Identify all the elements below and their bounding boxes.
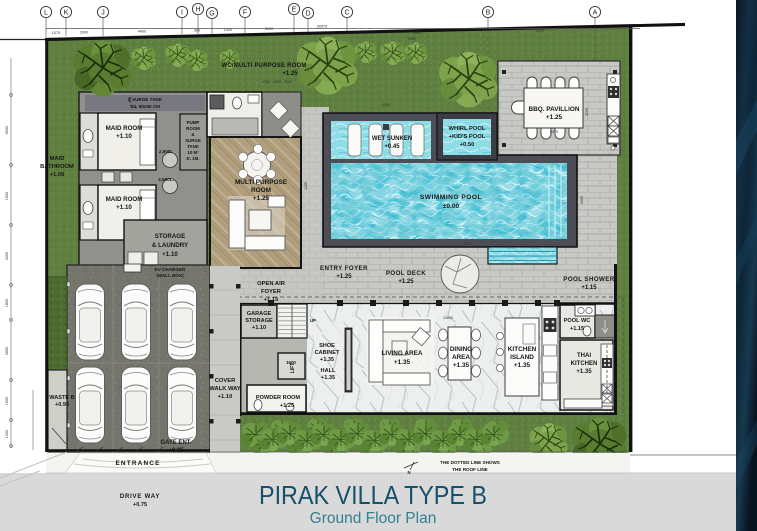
svg-text:UP: UP	[310, 318, 316, 323]
svg-text:+1.10: +1.10	[116, 133, 132, 140]
svg-text:L: L	[44, 10, 48, 17]
svg-text:+0.50: +0.50	[460, 142, 475, 148]
svg-text:WALK WAY: WALK WAY	[209, 386, 240, 392]
svg-text:ISLAND: ISLAND	[510, 354, 534, 361]
svg-text:+1.10: +1.10	[116, 204, 132, 211]
svg-text:+1.35: +1.35	[576, 369, 592, 375]
svg-text:MAID ROOM: MAID ROOM	[106, 196, 143, 203]
svg-text:LIVING AREA: LIVING AREA	[382, 350, 423, 357]
svg-text:ขน. 60x60 CM: ขน. 60x60 CM	[130, 104, 160, 109]
svg-text:WHIRL POOL: WHIRL POOL	[449, 126, 486, 132]
svg-text:3300: 3300	[580, 196, 584, 204]
svg-text:Ground Floor Plan: Ground Floor Plan	[310, 510, 437, 527]
svg-text:+1.25: +1.25	[398, 279, 414, 285]
svg-text:WET SUNKEN: WET SUNKEN	[372, 136, 412, 142]
svg-text:I: I	[181, 10, 183, 17]
svg-text:STORAGE: STORAGE	[245, 318, 273, 324]
svg-text:ROOM: ROOM	[186, 126, 200, 131]
svg-text:ENTRY FOYER: ENTRY FOYER	[320, 265, 368, 272]
svg-text:+1.35: +1.35	[320, 357, 334, 363]
svg-text:5800: 5800	[536, 29, 544, 33]
svg-text:1350 1050 2600: 1350 1050 2600	[262, 80, 292, 84]
svg-text:LIFT: LIFT	[290, 363, 296, 374]
svg-text:5000: 5000	[265, 27, 273, 31]
svg-text:WASTE B: WASTE B	[49, 395, 74, 401]
svg-text:PIRAK VILLA TYPE B: PIRAK VILLA TYPE B	[259, 480, 487, 510]
svg-text:D. 1M.: D. 1M.	[187, 156, 200, 161]
svg-text:+1.25: +1.25	[546, 114, 563, 121]
svg-text:30975: 30975	[317, 25, 328, 29]
svg-text:1800: 1800	[5, 299, 9, 307]
svg-text:& LAUNDRY: & LAUNDRY	[152, 242, 189, 249]
svg-text:SHOE: SHOE	[319, 343, 335, 349]
svg-text:F: F	[243, 10, 247, 17]
svg-text:2,500L.: 2,500L.	[158, 177, 174, 182]
svg-text:2000: 2000	[80, 31, 88, 35]
svg-text:FOYER: FOYER	[261, 289, 282, 295]
svg-text:7800: 7800	[413, 31, 421, 35]
svg-text:THE DOTTED LINE SHOWS: THE DOTTED LINE SHOWS	[440, 460, 500, 465]
svg-text:1075: 1075	[52, 31, 60, 35]
svg-text:ENTRANCE: ENTRANCE	[115, 460, 160, 467]
svg-text:STORAGE: STORAGE	[155, 233, 185, 240]
svg-text:+1.35: +1.35	[321, 375, 335, 381]
svg-text:DINING: DINING	[450, 346, 472, 353]
svg-text:1000: 1000	[5, 397, 9, 405]
svg-text:BBQ. PAVILLION: BBQ. PAVILLION	[529, 106, 580, 113]
svg-text:+0.95: +0.95	[55, 402, 69, 408]
svg-text:+0.75: +0.75	[133, 502, 147, 508]
svg-text:+1.10: +1.10	[162, 251, 178, 258]
svg-text:MAID: MAID	[50, 156, 65, 162]
svg-text:+1.35: +1.35	[394, 359, 411, 366]
svg-text:3200: 3200	[585, 108, 589, 116]
svg-text:+1.25: +1.25	[280, 403, 294, 409]
svg-text:GARAGE: GARAGE	[247, 311, 272, 317]
svg-text:+1.25: +1.25	[253, 195, 270, 202]
svg-text:สัู่ SURGE TANK: สัู่ SURGE TANK	[128, 96, 163, 103]
svg-text:±0.00: ±0.00	[443, 203, 460, 210]
svg-text:13600: 13600	[443, 316, 453, 320]
svg-text:OPEN AIR: OPEN AIR	[257, 281, 286, 287]
svg-text:+1.25: +1.25	[282, 71, 298, 77]
svg-text:DRIVE WAY: DRIVE WAY	[120, 494, 160, 500]
svg-text:AREA: AREA	[452, 354, 470, 361]
svg-text:K: K	[64, 10, 69, 17]
svg-text:+KID'S POOL: +KID'S POOL	[449, 134, 486, 140]
svg-text:COVER: COVER	[215, 378, 236, 384]
svg-text:5400: 5400	[408, 37, 416, 41]
svg-text:+1.00: +1.00	[50, 172, 65, 178]
svg-text:+1.15: +1.15	[264, 297, 279, 303]
svg-text:3200: 3200	[5, 252, 9, 260]
svg-text:THAI: THAI	[577, 353, 591, 359]
svg-text:3500: 3500	[463, 242, 471, 246]
svg-text:B: B	[486, 10, 491, 17]
svg-text:GATE ENT.: GATE ENT.	[161, 440, 192, 446]
svg-text:+1.35: +1.35	[514, 362, 531, 369]
svg-text:2600: 2600	[5, 347, 9, 355]
svg-text:A: A	[593, 10, 598, 17]
svg-text:9000: 9000	[5, 126, 9, 134]
svg-text:D: D	[305, 11, 310, 18]
svg-text:J: J	[101, 10, 105, 17]
svg-text:WC/MULTI PURPOSE ROOM: WC/MULTI PURPOSE ROOM	[221, 63, 306, 69]
svg-text:POOL WC: POOL WC	[564, 318, 591, 324]
svg-text:G: G	[209, 11, 214, 18]
svg-text:1500: 1500	[5, 192, 9, 200]
svg-text:E: E	[292, 7, 297, 14]
svg-text:5300: 5300	[382, 103, 390, 107]
svg-text:POOL DECK: POOL DECK	[386, 270, 426, 277]
svg-text:MAID ROOM: MAID ROOM	[106, 125, 143, 132]
svg-text:2,500L: 2,500L	[159, 149, 173, 154]
svg-text:N: N	[407, 470, 410, 475]
svg-text:ROOM: ROOM	[251, 187, 271, 194]
svg-text:+1.10: +1.10	[218, 394, 233, 400]
svg-text:+1.25: +1.25	[336, 274, 352, 280]
svg-text:10 M³: 10 M³	[187, 150, 199, 155]
svg-text:1200: 1200	[304, 182, 308, 190]
svg-text:KITCHEN: KITCHEN	[508, 346, 537, 353]
svg-text:POWDER ROOM: POWDER ROOM	[256, 395, 300, 401]
svg-text:HALL: HALL	[321, 368, 336, 374]
svg-text:1200: 1200	[5, 430, 9, 438]
svg-text:300: 300	[194, 29, 200, 33]
svg-text:EV CHARGER: EV CHARGER	[155, 267, 186, 272]
svg-text:+1.35: +1.35	[453, 362, 470, 369]
svg-text:C: C	[344, 10, 349, 17]
svg-text:+1.10: +1.10	[252, 325, 266, 331]
svg-text:SWIMMING POOL: SWIMMING POOL	[420, 194, 482, 201]
svg-text:TANK: TANK	[187, 144, 200, 149]
svg-text:KITCHEN: KITCHEN	[571, 361, 598, 367]
svg-text:PUMP: PUMP	[187, 120, 200, 125]
svg-text:SURGE: SURGE	[185, 138, 201, 143]
svg-text:CABINET: CABINET	[315, 350, 340, 356]
svg-text:THE ROOF LINE: THE ROOF LINE	[452, 467, 487, 472]
svg-text:POOL SHOWER: POOL SHOWER	[563, 276, 615, 283]
svg-text:MULTI PURPOSE: MULTI PURPOSE	[235, 179, 288, 186]
svg-text:+0.45: +0.45	[384, 144, 400, 150]
svg-text:(WALL BOX): (WALL BOX)	[156, 273, 184, 278]
svg-text:6075: 6075	[550, 130, 558, 134]
svg-text:H: H	[195, 7, 200, 14]
svg-text:1400: 1400	[224, 28, 232, 32]
svg-text:+1.15: +1.15	[581, 285, 597, 291]
svg-text:+1.15: +1.15	[570, 326, 584, 332]
svg-text:4400: 4400	[138, 30, 146, 34]
